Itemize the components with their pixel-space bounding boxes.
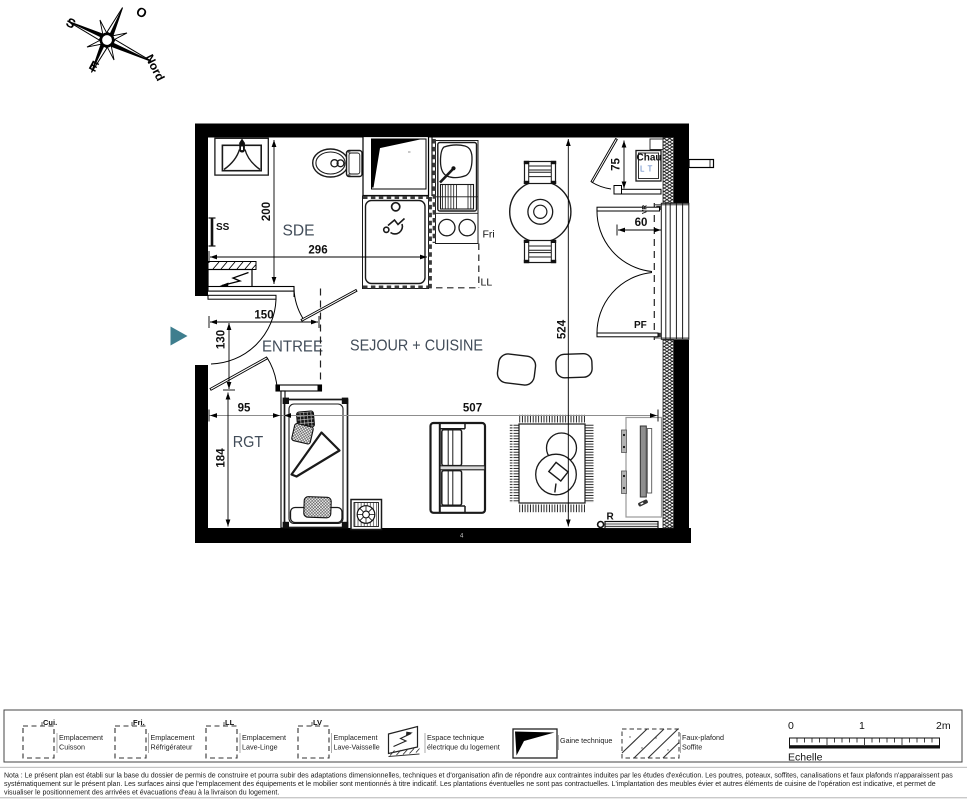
svg-text:Emplacement: Emplacement [334, 733, 378, 742]
svg-text:Lave-Vaisselle: Lave-Vaisselle [334, 743, 380, 752]
svg-text:524: 524 [557, 319, 569, 339]
svg-text:95: 95 [238, 403, 251, 415]
svg-text:Gaine technique: Gaine technique [560, 736, 612, 745]
svg-text:130: 130 [216, 330, 228, 349]
svg-text:RGT: RGT [233, 434, 264, 451]
svg-text:184: 184 [216, 448, 228, 468]
svg-text:60: 60 [635, 217, 648, 229]
svg-text:Faux-plafond: Faux-plafond [682, 733, 724, 742]
svg-text:296: 296 [308, 245, 327, 257]
svg-text:Nota : Le présent plan est éta: Nota : Le présent plan est établi sur la… [4, 773, 953, 780]
svg-text:Chau: Chau [637, 153, 662, 164]
svg-text:L: L [640, 165, 645, 174]
svg-text:LL: LL [481, 277, 493, 289]
svg-text:T: T [648, 165, 653, 174]
svg-text:SEJOUR + CUISINE: SEJOUR + CUISINE [350, 338, 483, 355]
svg-text:150: 150 [254, 310, 273, 322]
svg-text:Echelle: Echelle [788, 752, 823, 764]
svg-text:75: 75 [611, 158, 623, 171]
svg-text:Emplacement: Emplacement [151, 733, 195, 742]
svg-text:200: 200 [261, 202, 273, 221]
svg-text:Fri.: Fri. [133, 718, 145, 727]
svg-text:PF: PF [634, 320, 647, 331]
svg-text:Espace technique: Espace technique [427, 733, 484, 742]
svg-text:SS: SS [216, 222, 230, 233]
svg-text:ENTREE: ENTREE [262, 339, 323, 356]
svg-text:visualiser le positionnement d: visualiser le positionnement des arrivée… [4, 790, 279, 797]
svg-text:Soffite: Soffite [682, 743, 702, 752]
svg-text:systématiquement sur le présen: systématiquement sur le présent plan. Le… [4, 781, 936, 788]
svg-text:Réfrigérateur: Réfrigérateur [151, 743, 194, 752]
svg-text:2m: 2m [936, 720, 951, 732]
svg-text:0: 0 [788, 720, 794, 732]
svg-text:Fri: Fri [483, 229, 495, 241]
svg-text:électrique du logement: électrique du logement [427, 743, 500, 752]
svg-text:LV: LV [313, 718, 322, 727]
svg-text:R: R [607, 512, 615, 523]
svg-text:LL: LL [225, 718, 235, 727]
svg-text:Cui.: Cui. [43, 718, 57, 727]
svg-text:Lave-Linge: Lave-Linge [242, 743, 278, 752]
svg-text:VR: VR [642, 205, 649, 214]
svg-text:Emplacement: Emplacement [59, 733, 103, 742]
svg-text:Emplacement: Emplacement [242, 733, 286, 742]
svg-text:507: 507 [463, 403, 482, 415]
svg-text:SDE: SDE [283, 223, 315, 240]
svg-text:Cuisson: Cuisson [59, 743, 85, 752]
svg-text:1: 1 [859, 720, 865, 732]
